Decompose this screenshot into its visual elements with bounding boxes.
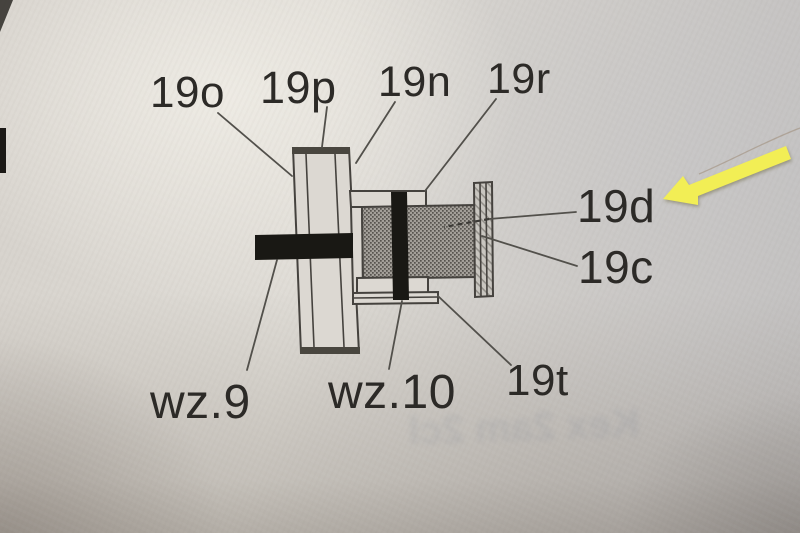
part-19r-collar-top	[350, 191, 426, 207]
leader-19d-solid	[489, 212, 576, 219]
highlight-arrow	[663, 146, 791, 205]
part-19c-inner-line-2	[486, 183, 487, 296]
leader-wz10	[389, 301, 402, 369]
label-19o: 19o	[150, 68, 225, 117]
photo-of-technical-drawing: Kex 2am 2cl	[0, 0, 800, 533]
tool-wz10-bar	[391, 192, 409, 300]
tool-wz9-bar	[255, 233, 353, 260]
leader-19n	[356, 102, 395, 163]
leader-19c	[482, 236, 577, 266]
label-19c: 19c	[578, 241, 654, 293]
part-19p-bottom-cap	[300, 347, 360, 354]
left-edge-print-fragment	[0, 128, 6, 173]
figure-svg: 19o 19p 19n 19r 19d 19c 19t wz.9 wz.10	[0, 0, 800, 533]
label-19n: 19n	[378, 58, 451, 106]
label-19d: 19d	[577, 180, 655, 232]
leader-19r	[425, 99, 496, 191]
leader-19t	[438, 296, 511, 365]
label-wz9: wz.9	[149, 376, 251, 429]
page-corner-shadow	[0, 0, 13, 32]
leader-19o	[218, 113, 292, 176]
label-19t: 19t	[506, 356, 569, 405]
label-wz10: wz.10	[327, 366, 456, 419]
label-19r: 19r	[487, 55, 551, 103]
part-19c-inner-line-1	[480, 183, 481, 296]
part-19p-top-cap	[292, 147, 350, 154]
leader-19p	[322, 107, 327, 147]
part-19d-cylinder	[362, 205, 476, 279]
label-19p: 19p	[260, 62, 337, 113]
leader-wz9	[247, 260, 277, 370]
